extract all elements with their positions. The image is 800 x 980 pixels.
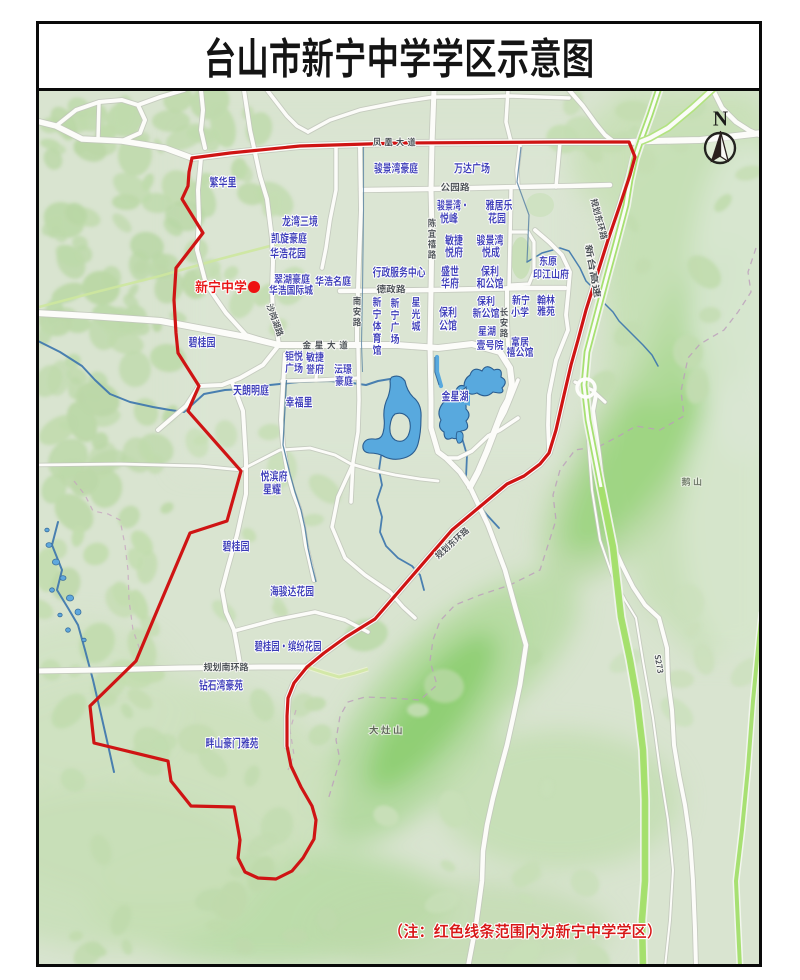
svg-text:公园路: 公园路	[441, 179, 470, 193]
svg-text:华浩名庭: 华浩名庭	[315, 273, 351, 289]
svg-text:华府: 华府	[441, 274, 459, 291]
svg-text:雅苑: 雅苑	[537, 303, 555, 319]
svg-text:公馆: 公馆	[439, 316, 457, 333]
svg-text:凤凰大道: 凤凰大道	[373, 134, 419, 148]
svg-text:和公馆: 和公馆	[477, 274, 504, 291]
svg-text:广场: 广场	[285, 360, 303, 376]
svg-text:馆: 馆	[373, 342, 382, 358]
svg-text:碧桂园: 碧桂园	[189, 333, 216, 350]
svg-text:誉府: 誉府	[306, 361, 324, 377]
svg-text:禧公馆: 禧公馆	[507, 344, 534, 360]
svg-text:印江山府: 印江山府	[533, 266, 569, 282]
svg-text:规划南环路: 规划南环路	[204, 659, 249, 673]
svg-text:龙湾三境: 龙湾三境	[282, 212, 318, 229]
svg-text:花园: 花园	[488, 209, 506, 226]
svg-text:N: N	[713, 107, 728, 131]
svg-text:路: 路	[500, 325, 509, 339]
svg-text:华浩花园: 华浩花园	[270, 244, 306, 261]
svg-text:小学: 小学	[511, 304, 529, 320]
svg-text:场: 场	[391, 331, 400, 347]
svg-text:鹅山: 鹅山	[681, 475, 704, 488]
svg-text:悦峰: 悦峰	[440, 209, 458, 226]
svg-text:万达广场: 万达广场	[454, 159, 490, 176]
svg-text:海骏达花园: 海骏达花园	[270, 582, 314, 599]
svg-text:大灶山: 大灶山	[369, 722, 405, 736]
svg-text:城: 城	[412, 318, 421, 334]
svg-text:骏景湾豪庭: 骏景湾豪庭	[374, 159, 418, 176]
svg-text:新公馆: 新公馆	[473, 305, 500, 321]
svg-text:新宁中学: 新宁中学	[195, 277, 247, 297]
svg-text:路: 路	[428, 247, 437, 261]
svg-text:天朗明庭: 天朗明庭	[233, 381, 269, 398]
svg-text:畔山豪门雅苑: 畔山豪门雅苑	[206, 734, 259, 751]
svg-text:金星大道: 金星大道	[303, 337, 352, 351]
svg-text:碧桂园·缤纷花园: 碧桂园·缤纷花园	[255, 637, 322, 654]
svg-text:碧桂园: 碧桂园	[223, 537, 250, 554]
svg-text:豪庭: 豪庭	[335, 373, 353, 389]
svg-text:行政服务中心: 行政服务中心	[373, 263, 426, 280]
svg-text:悦府: 悦府	[445, 243, 463, 260]
svg-text:华浩国际城: 华浩国际城	[269, 282, 313, 298]
svg-text:金星湖: 金星湖	[442, 387, 469, 404]
svg-text:钻石湾豪苑: 钻石湾豪苑	[199, 676, 243, 693]
svg-text:德政路: 德政路	[377, 281, 406, 295]
svg-text:悦成: 悦成	[482, 243, 500, 260]
svg-text:路: 路	[353, 314, 362, 328]
svg-text:（注：红色线条范围内为新宁中学学区）: （注：红色线条范围内为新宁中学学区）	[388, 918, 662, 942]
svg-text:幸福里: 幸福里	[286, 393, 313, 410]
svg-text:繁华里: 繁华里	[210, 173, 237, 190]
svg-text:星耀: 星耀	[263, 480, 281, 497]
